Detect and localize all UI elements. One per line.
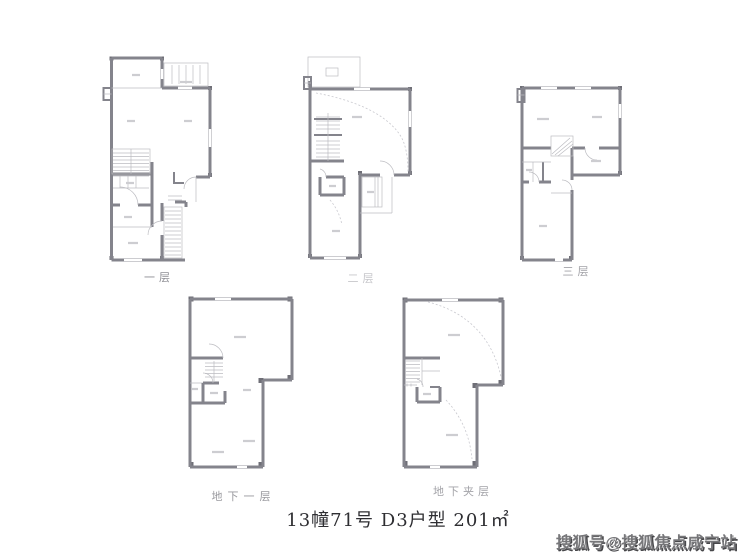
plan-5-walls [404, 300, 503, 467]
plan-2-interior [316, 93, 408, 225]
floorplan-basement-1 [185, 295, 302, 480]
plan-5-stairs [405, 358, 440, 385]
plan-label-level-2: 二层 [300, 270, 425, 286]
plan-2-utility-room [320, 169, 344, 195]
floorplan-level-3 [515, 62, 640, 262]
plan-4-stairs [205, 361, 223, 381]
plan-label-basement-mezzanine: 地下夹层 [402, 483, 524, 499]
plan-3-stairs [551, 136, 573, 156]
plan-1-balcony [164, 63, 208, 86]
plan-2-windows [304, 83, 412, 260]
floorplan-page: 一层 二层 三层 地下一层 地下夹层 13幢71号 D3户型 201㎡ 搜狐号@… [0, 0, 740, 555]
plan-3-room-labels [526, 117, 602, 226]
plan-label-level-1: 一层 [100, 269, 218, 285]
watermark-text: 搜狐号@搜狐焦点咸宁站 [556, 529, 737, 553]
plan-5-windows [404, 299, 458, 469]
plan-label-basement-1: 地下一层 [185, 488, 302, 504]
plan-5-ceiling-lines [428, 302, 501, 459]
plan-1-windows [124, 69, 212, 262]
plan-2-terrace [308, 57, 360, 87]
plan-label-level-3: 三层 [515, 263, 640, 279]
plan-2-walls [304, 77, 410, 258]
plan-5-utility-room [417, 379, 440, 402]
plan-3-windows [518, 87, 622, 119]
floorplan-basement-mezzanine [402, 297, 524, 482]
plan-5-room-labels [423, 335, 460, 435]
plan-2-stairs [316, 113, 340, 161]
floorplan-level-2 [300, 55, 425, 265]
plan-3-interior [522, 148, 597, 262]
floorplan-level-1 [100, 55, 218, 267]
